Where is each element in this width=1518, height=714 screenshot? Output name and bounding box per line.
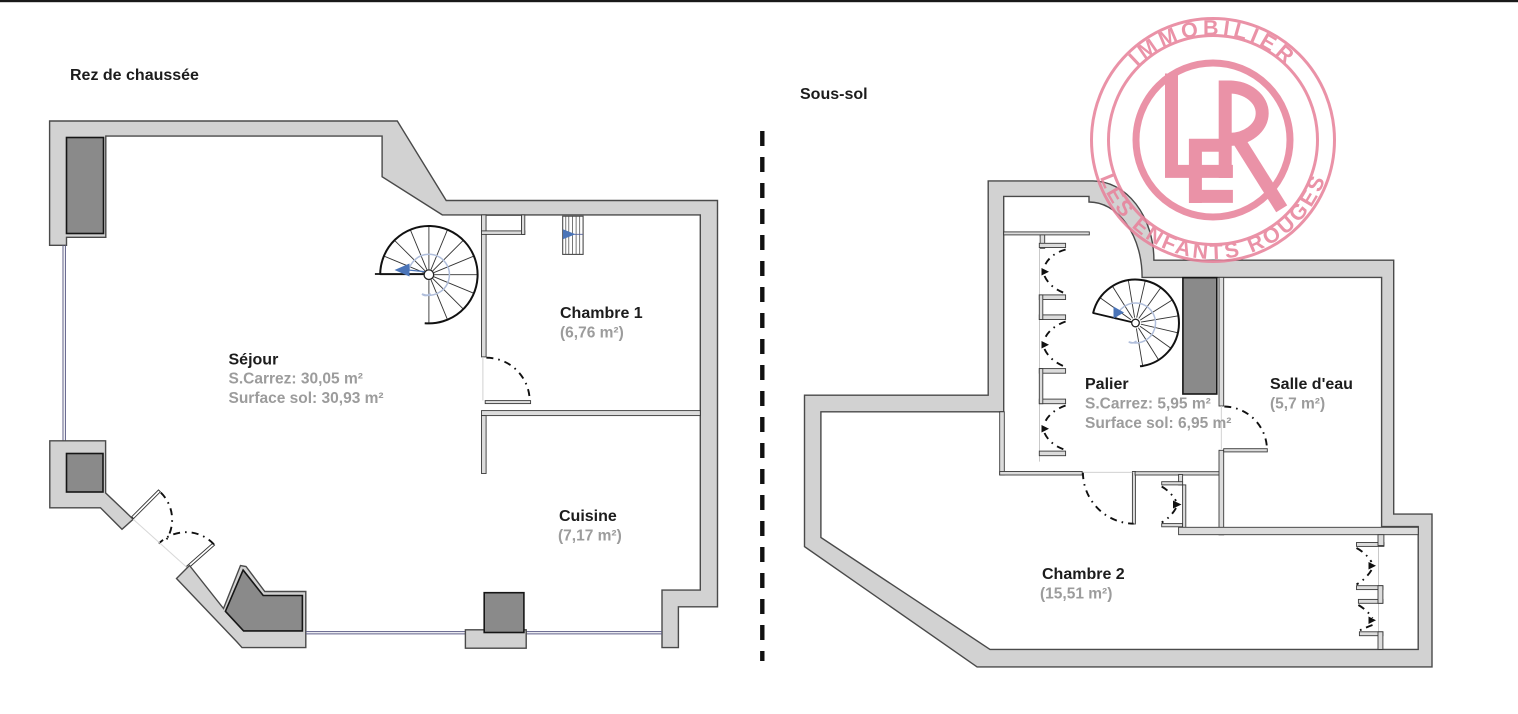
- svg-text:Cuisine: Cuisine: [559, 508, 617, 525]
- svg-text:(15,51 m²): (15,51 m²): [1040, 586, 1112, 603]
- svg-text:Surface sol: 6,95 m²: Surface sol: 6,95 m²: [1085, 415, 1231, 432]
- svg-text:S.Carrez: 30,05 m²: S.Carrez: 30,05 m²: [229, 371, 363, 388]
- svg-text:Sous-sol: Sous-sol: [800, 86, 868, 103]
- svg-text:S.Carrez: 5,95 m²: S.Carrez: 5,95 m²: [1085, 396, 1211, 413]
- svg-text:Palier: Palier: [1085, 376, 1129, 393]
- svg-text:Chambre 2: Chambre 2: [1042, 566, 1125, 583]
- svg-text:Rez de chaussée: Rez de chaussée: [70, 67, 199, 84]
- svg-text:(7,17 m²): (7,17 m²): [558, 528, 622, 545]
- svg-text:Séjour: Séjour: [229, 352, 279, 369]
- svg-text:(5,7 m²): (5,7 m²): [1270, 396, 1325, 413]
- svg-text:Salle d'eau: Salle d'eau: [1270, 376, 1353, 393]
- svg-text:Chambre 1: Chambre 1: [560, 305, 643, 322]
- svg-text:(6,76 m²): (6,76 m²): [560, 325, 624, 342]
- svg-text:Surface sol: 30,93 m²: Surface sol: 30,93 m²: [229, 390, 384, 407]
